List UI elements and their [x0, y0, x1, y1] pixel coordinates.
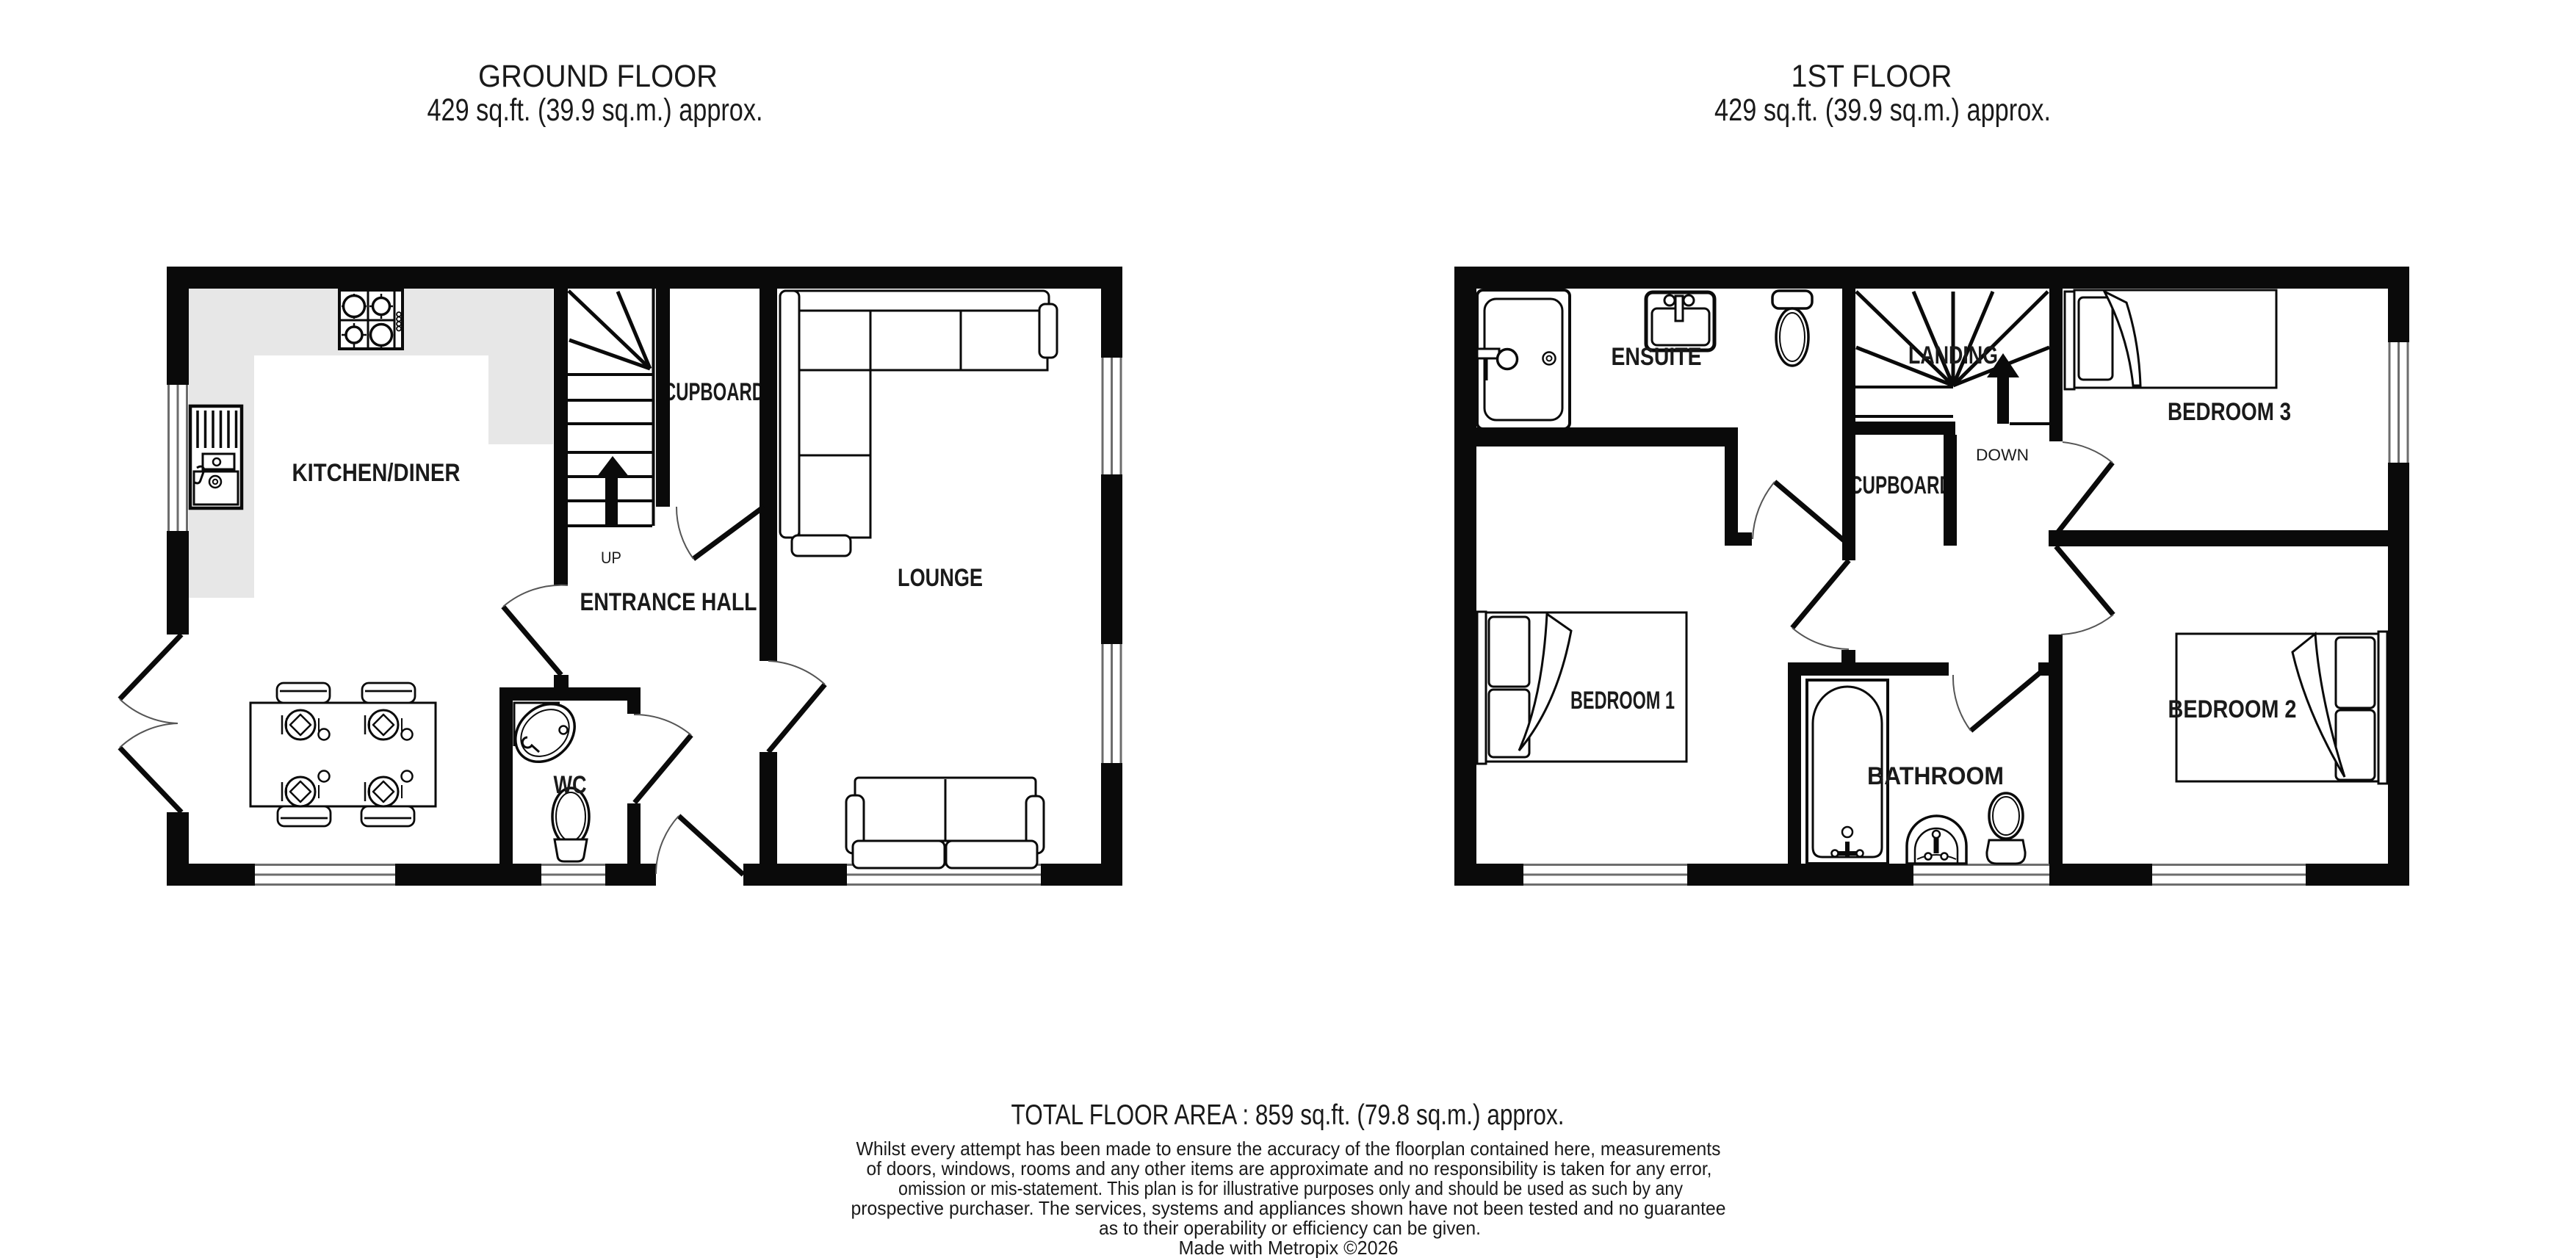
svg-text:429 sq.ft. (39.9 sq.m.) approx: 429 sq.ft. (39.9 sq.m.) approx.: [1714, 93, 2051, 128]
svg-text:BEDROOM 1: BEDROOM 1: [1570, 687, 1675, 715]
svg-text:DOWN: DOWN: [1976, 446, 2029, 464]
svg-text:WC: WC: [554, 771, 587, 799]
svg-text:of doors, windows, rooms and a: of doors, windows, rooms and any other i…: [867, 1157, 1712, 1179]
svg-text:TOTAL FLOOR AREA : 859 sq.ft.: TOTAL FLOOR AREA : 859 sq.ft. (79.8 sq.m…: [1011, 1099, 1565, 1131]
svg-text:omission or mis-statement. Thi: omission or mis-statement. This plan is …: [898, 1177, 1683, 1199]
svg-text:Made with Metropix ©2026: Made with Metropix ©2026: [1179, 1237, 1399, 1258]
svg-text:UP: UP: [601, 549, 621, 567]
svg-text:LANDING: LANDING: [1908, 341, 1998, 369]
svg-text:429 sq.ft. (39.9 sq.m.) approx: 429 sq.ft. (39.9 sq.m.) approx.: [427, 93, 763, 128]
svg-text:BEDROOM 2: BEDROOM 2: [2168, 695, 2297, 723]
svg-text:LOUNGE: LOUNGE: [898, 564, 983, 592]
svg-text:as to their operability or eff: as to their operability or efficiency ca…: [1099, 1217, 1481, 1239]
svg-text:CUPBOARD: CUPBOARD: [1850, 471, 1952, 499]
svg-text:BATHROOM: BATHROOM: [1867, 762, 2004, 790]
svg-text:KITCHEN/DINER: KITCHEN/DINER: [292, 459, 461, 487]
svg-text:CUPBOARD: CUPBOARD: [663, 378, 765, 406]
svg-text:1ST FLOOR: 1ST FLOOR: [1792, 59, 1952, 94]
svg-text:ENTRANCE HALL: ENTRANCE HALL: [580, 588, 757, 616]
svg-text:prospective purchaser. The ser: prospective purchaser. The services, sys…: [851, 1197, 1726, 1219]
svg-text:BEDROOM 3: BEDROOM 3: [2168, 398, 2291, 426]
svg-text:GROUND FLOOR: GROUND FLOOR: [478, 59, 718, 94]
svg-text:Whilst every attempt has been: Whilst every attempt has been made to en…: [856, 1138, 1721, 1160]
svg-text:ENSUITE: ENSUITE: [1612, 343, 1702, 371]
